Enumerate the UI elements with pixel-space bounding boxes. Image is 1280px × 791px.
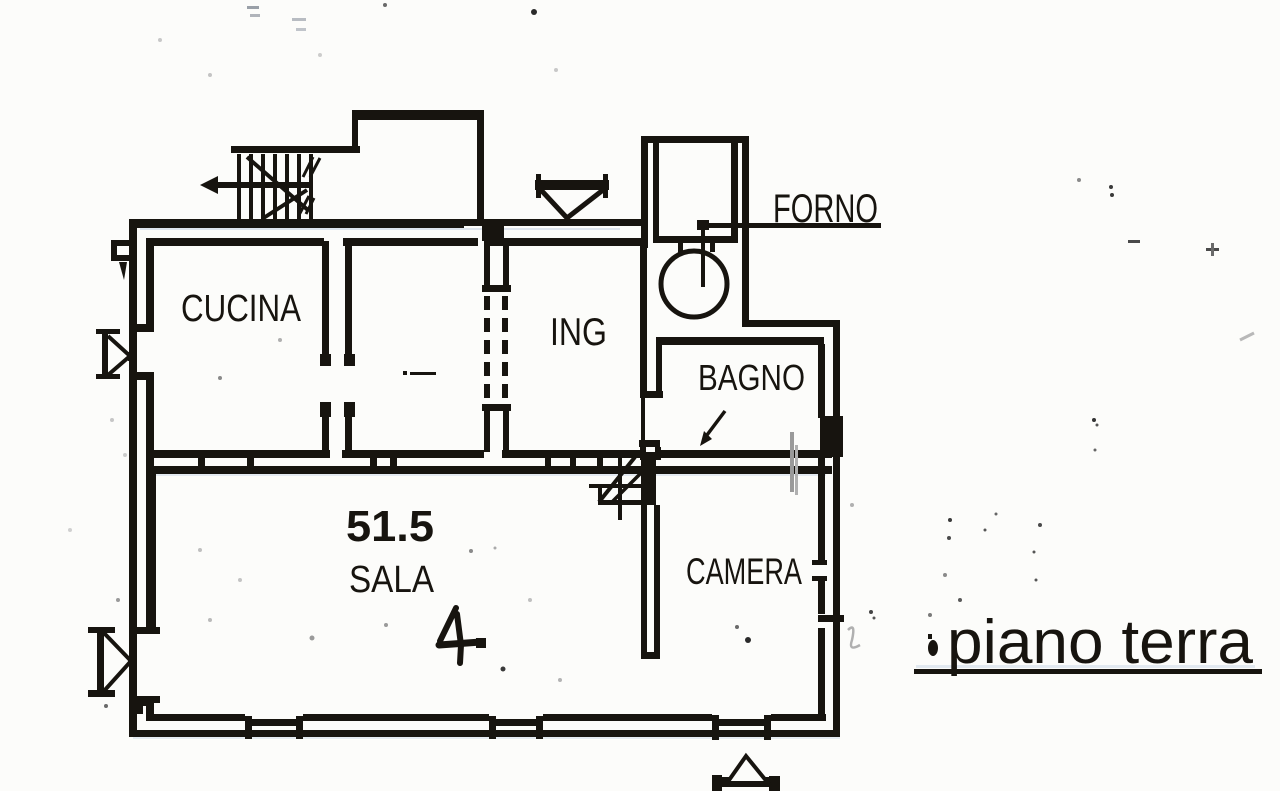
- svg-text:FORNO: FORNO: [773, 187, 878, 231]
- svg-text:piano terra: piano terra: [947, 608, 1254, 677]
- svg-text:CAMERA: CAMERA: [686, 551, 802, 592]
- svg-text:ING: ING: [550, 311, 607, 354]
- svg-text:51.5: 51.5: [346, 502, 434, 551]
- svg-text:BAGNO: BAGNO: [698, 357, 805, 398]
- svg-text:SALA: SALA: [349, 559, 435, 601]
- svg-text:CUCINA: CUCINA: [181, 288, 302, 330]
